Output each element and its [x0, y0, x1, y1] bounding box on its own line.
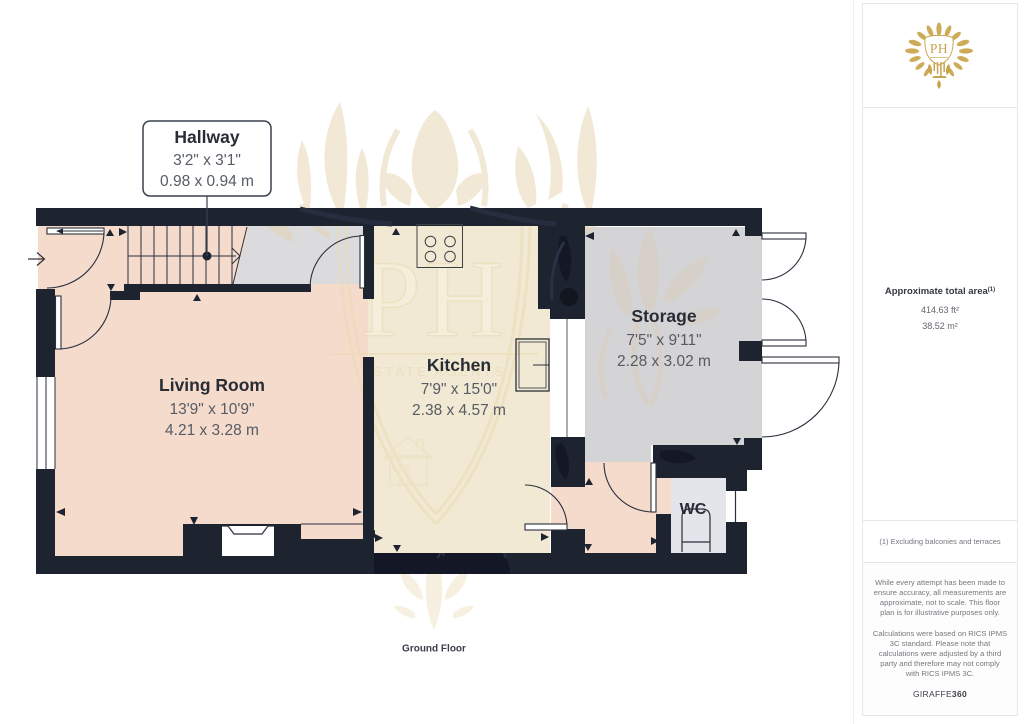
svg-text:PH: PH [360, 238, 509, 360]
svg-text:Ground Floor: Ground Floor [402, 644, 466, 655]
svg-text:approximate, not to scale. Thi: approximate, not to scale. This floor [880, 598, 1001, 607]
svg-text:13'9" x 10'9": 13'9" x 10'9" [169, 401, 254, 418]
svg-text:2.38 x 4.57 m: 2.38 x 4.57 m [412, 402, 506, 419]
svg-text:Kitchen: Kitchen [427, 355, 491, 375]
svg-text:Living Room: Living Room [159, 375, 265, 395]
svg-text:Hallway: Hallway [174, 127, 239, 147]
svg-text:plan is for illustrative purpo: plan is for illustrative purposes only. [880, 608, 1000, 617]
svg-text:While every attempt has been m: While every attempt has been made to [875, 578, 1005, 587]
svg-text:2.28 x 3.02 m: 2.28 x 3.02 m [617, 353, 711, 370]
svg-text:Approximate total area(1): Approximate total area(1) [885, 286, 995, 297]
svg-text:PH: PH [930, 41, 948, 56]
svg-text:(1) Excluding balconies and te: (1) Excluding balconies and terraces [879, 537, 1001, 546]
svg-text:with RICS IPMS 3C.: with RICS IPMS 3C. [905, 669, 974, 678]
svg-text:0.98 x 0.94 m: 0.98 x 0.94 m [160, 173, 254, 190]
svg-text:WC: WC [680, 501, 707, 518]
svg-text:GIRAFFE360: GIRAFFE360 [913, 689, 967, 699]
svg-text:party and therefore may not co: party and therefore may not comply [880, 659, 1000, 668]
svg-text:Calculations were based on RIC: Calculations were based on RICS IPMS [873, 629, 1007, 638]
svg-text:ensure accuracy, all measureme: ensure accuracy, all measurements are [874, 588, 1006, 597]
svg-text:calculations were adjusted by: calculations were adjusted by a third [879, 649, 1001, 658]
svg-text:3C standard. Please note that: 3C standard. Please note that [890, 639, 991, 648]
svg-text:414.63 ft²: 414.63 ft² [921, 305, 959, 315]
svg-text:38.52 m²: 38.52 m² [922, 321, 958, 331]
svg-text:7'5" x 9'11": 7'5" x 9'11" [626, 332, 701, 349]
svg-text:7'9" x 15'0": 7'9" x 15'0" [421, 381, 497, 398]
svg-text:4.21 x 3.28 m: 4.21 x 3.28 m [165, 422, 259, 439]
svg-text:3'2" x 3'1": 3'2" x 3'1" [173, 152, 241, 169]
svg-text:Storage: Storage [631, 306, 696, 326]
